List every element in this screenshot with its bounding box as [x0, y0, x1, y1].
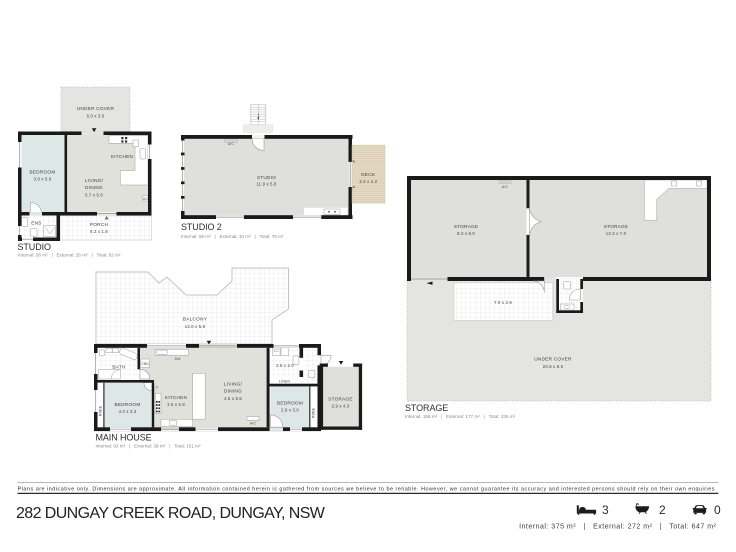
svg-text:Plans are indicative only. Dim: Plans are indicative only. Dimensions ar…	[18, 486, 715, 492]
svg-text:Internal: 92 m² | External: Internal: 92 m² | External: 39 m² | Tota…	[96, 444, 201, 449]
svg-text:Internal: 56 m² | External: Internal: 56 m² | External: 26 m² | Tota…	[18, 253, 121, 258]
svg-text:6.2 x 1.8: 6.2 x 1.8	[90, 229, 108, 234]
svg-text:3.6 x 5.8: 3.6 x 5.8	[167, 402, 185, 407]
svg-text:A/C: A/C	[502, 185, 509, 189]
svg-text:2.4 x 4.2: 2.4 x 4.2	[359, 179, 377, 184]
svg-text:4.5 x 5.8: 4.5 x 5.8	[224, 396, 242, 401]
svg-text:LIVING/: LIVING/	[224, 382, 243, 387]
svg-text:BEDROOM: BEDROOM	[277, 401, 303, 406]
svg-text:STORAGE: STORAGE	[604, 224, 629, 229]
svg-text:KITCHEN: KITCHEN	[165, 395, 187, 400]
svg-text:A/C: A/C	[228, 142, 235, 146]
svg-text:AC: AC	[143, 197, 148, 201]
svg-text:DW: DW	[175, 357, 182, 361]
svg-text:A/C: A/C	[250, 422, 257, 426]
svg-text:Internal: 158 m² | Externa: Internal: 158 m² | External: 177 m² | To…	[405, 414, 516, 419]
svg-text:UNDER COVER: UNDER COVER	[77, 106, 115, 111]
svg-text:DINING: DINING	[85, 185, 103, 190]
svg-text:STUDIO 2: STUDIO 2	[181, 222, 222, 232]
svg-text:282 DUNGAY CREEK ROAD, DUNGAY,: 282 DUNGAY CREEK ROAD, DUNGAY, NSW	[16, 505, 326, 522]
svg-text:BEDROOM: BEDROOM	[30, 170, 56, 175]
svg-text:4.0 x 3.3: 4.0 x 3.3	[119, 409, 137, 414]
svg-text:ROBE: ROBE	[99, 405, 103, 416]
svg-text:STORAGE: STORAGE	[405, 403, 448, 413]
svg-text:3: 3	[602, 503, 609, 517]
svg-text:3.0 x 5.6: 3.0 x 5.6	[34, 177, 52, 182]
svg-text:MAIN HOUSE: MAIN HOUSE	[96, 433, 152, 443]
svg-text:LINEN: LINEN	[279, 379, 290, 383]
svg-text:2: 2	[659, 503, 666, 517]
svg-text:0: 0	[714, 503, 721, 517]
svg-text:STORAGE: STORAGE	[454, 224, 479, 229]
svg-text:LIVING/: LIVING/	[85, 178, 104, 183]
svg-text:2.9 x 4.3: 2.9 x 4.3	[332, 404, 350, 409]
svg-text:BEDROOM: BEDROOM	[115, 402, 141, 407]
svg-text:BATH: BATH	[112, 365, 125, 370]
svg-text:20.6 x 8.5: 20.6 x 8.5	[543, 364, 564, 369]
svg-text:8.3 x 6.9: 8.3 x 6.9	[457, 231, 475, 236]
svg-text:STUDIO: STUDIO	[18, 242, 52, 252]
svg-text:Internal: 375 m² | Externa: Internal: 375 m² | External: 272 m² | To…	[519, 523, 716, 530]
svg-text:UNDER COVER: UNDER COVER	[534, 357, 572, 362]
svg-text:DECK: DECK	[361, 172, 376, 177]
svg-text:BALCONY: BALCONY	[183, 317, 208, 322]
svg-text:5.0 x 3.0: 5.0 x 3.0	[87, 114, 105, 119]
svg-text:11.9 x 5.8: 11.9 x 5.8	[256, 181, 277, 186]
svg-text:2.5 x 2.0: 2.5 x 2.0	[276, 363, 294, 368]
svg-text:STORAGE: STORAGE	[328, 397, 353, 402]
svg-text:Internal: 69 m² | External: Internal: 69 m² | External: 10 m² | Tota…	[181, 234, 284, 239]
svg-text:2.9 x 3.0: 2.9 x 3.0	[281, 408, 299, 413]
svg-text:CBD: CBD	[141, 362, 149, 366]
svg-text:PORCH: PORCH	[90, 222, 108, 227]
svg-text:DINING: DINING	[224, 389, 242, 394]
svg-text:ROBE: ROBE	[311, 407, 315, 418]
svg-text:12.3 x 7.0: 12.3 x 7.0	[606, 231, 627, 236]
svg-text:ENS: ENS	[31, 221, 41, 226]
svg-text:F: F	[156, 386, 158, 390]
svg-text:KITCHEN: KITCHEN	[111, 154, 133, 159]
svg-text:5.7 x 5.6: 5.7 x 5.6	[85, 193, 103, 198]
svg-text:12.0 x 5.8: 12.0 x 5.8	[185, 324, 206, 329]
svg-text:7.0 x 2.9: 7.0 x 2.9	[494, 300, 512, 305]
svg-text:STUDIO: STUDIO	[257, 175, 276, 180]
